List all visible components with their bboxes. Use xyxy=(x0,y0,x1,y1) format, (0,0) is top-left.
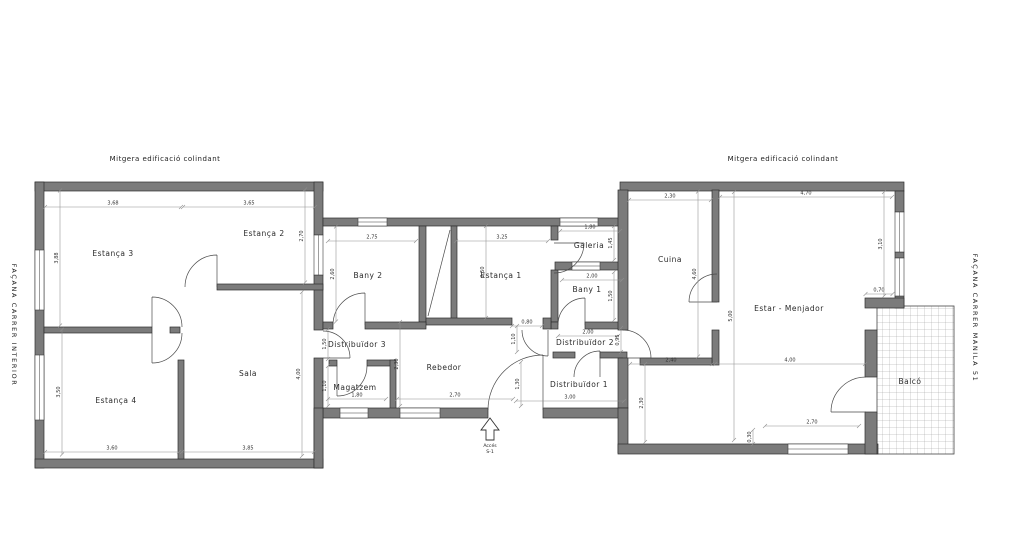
dimension: 2,70 xyxy=(299,188,307,285)
dimension: 4,00 xyxy=(713,358,867,367)
access-sublabel: S-1 xyxy=(486,449,494,455)
room-label-distribuidor-2: Distribuïdor 2 xyxy=(556,338,614,347)
svg-text:4,70: 4,70 xyxy=(800,191,811,197)
dimension: 1,50 xyxy=(608,270,616,322)
svg-text:4,00: 4,00 xyxy=(296,368,302,379)
facade-label-interior: FAÇANA CARRER INTERIOR xyxy=(10,264,18,387)
dimension: 2,00 xyxy=(560,274,624,283)
dimension: 1,10 xyxy=(511,324,519,354)
dimension: 1,45 xyxy=(608,224,616,262)
dimension: 2,30 xyxy=(627,194,713,203)
party-wall-note-left: Mitgera edificació colindant xyxy=(110,155,221,163)
doors xyxy=(152,243,866,412)
svg-text:2,30: 2,30 xyxy=(394,358,400,369)
facade-label-manila: FAÇANA CARRER MANILA 51 xyxy=(971,254,979,383)
svg-text:4,60: 4,60 xyxy=(692,268,698,279)
floor-plan-page: 3,683,652,753,251,802,304,702,000,802,00… xyxy=(0,0,1024,541)
dimension: 4,70 xyxy=(718,191,894,200)
svg-text:3,85: 3,85 xyxy=(242,446,253,452)
svg-text:0,30: 0,30 xyxy=(747,431,753,442)
svg-text:3,65: 3,65 xyxy=(243,201,254,207)
svg-text:3,10: 3,10 xyxy=(878,238,884,249)
room-label-distribuidor-3: Distribuïdor 3 xyxy=(328,340,386,349)
dimension: 4,60 xyxy=(692,190,700,359)
shaft-diagonal xyxy=(428,230,450,316)
svg-text:3,25: 3,25 xyxy=(496,235,507,241)
dimension: 2,60 xyxy=(330,225,338,324)
room-label-estar-menjador: Estar - Menjador xyxy=(754,304,824,313)
dimension: 3,25 xyxy=(454,235,550,244)
dimension: 0,80 xyxy=(510,320,544,329)
dimension: 3,68 xyxy=(43,201,183,210)
svg-text:2,70: 2,70 xyxy=(806,420,817,426)
svg-text:0,80: 0,80 xyxy=(521,320,532,326)
room-label-estanca-2: Estança 2 xyxy=(243,229,284,238)
dimension: 4,00 xyxy=(296,290,304,458)
dimension: 3,88 xyxy=(54,189,62,328)
room-label-bany-2: Bany 2 xyxy=(353,271,382,280)
dimension: 3,10 xyxy=(878,190,886,298)
svg-text:3,00: 3,00 xyxy=(564,395,575,401)
svg-text:5,00: 5,00 xyxy=(728,310,734,321)
svg-text:1,80: 1,80 xyxy=(351,393,362,399)
room-label-estanca-3: Estança 3 xyxy=(92,249,133,258)
svg-text:3,50: 3,50 xyxy=(56,386,62,397)
access-arrow-icon xyxy=(481,418,499,440)
room-label-estanca-4: Estança 4 xyxy=(95,396,136,405)
dimension: 2,70 xyxy=(763,420,861,429)
room-label-distribuidor-1: Distribuïdor 1 xyxy=(550,380,608,389)
svg-text:2,60: 2,60 xyxy=(330,268,336,279)
svg-text:2,30: 2,30 xyxy=(639,397,645,408)
dimension: 0,30 xyxy=(747,428,755,446)
svg-text:2,75: 2,75 xyxy=(366,235,377,241)
svg-text:4,00: 4,00 xyxy=(784,358,795,364)
svg-text:1,80: 1,80 xyxy=(584,225,595,231)
dimension: 2,30 xyxy=(639,362,647,444)
room-label-sala: Sala xyxy=(239,369,257,378)
dimension: 3,50 xyxy=(56,328,64,457)
svg-text:0,70: 0,70 xyxy=(873,288,884,294)
svg-text:0,95: 0,95 xyxy=(615,334,621,345)
svg-text:2,70: 2,70 xyxy=(449,393,460,399)
dimension: 3,00 xyxy=(514,395,626,404)
dimension: 2,00 xyxy=(556,330,620,339)
dimension: 1,80 xyxy=(326,393,388,402)
dimension: 0,70 xyxy=(864,288,895,297)
svg-text:2,40: 2,40 xyxy=(665,358,676,364)
party-wall-note-right: Mitgera edificació colindant xyxy=(728,155,839,163)
svg-text:2,70: 2,70 xyxy=(299,230,305,241)
svg-text:2,00: 2,00 xyxy=(582,330,593,336)
svg-text:1,10: 1,10 xyxy=(322,380,328,391)
svg-text:3,68: 3,68 xyxy=(107,201,118,207)
dimension: 3,65 xyxy=(181,201,317,210)
svg-text:2,00: 2,00 xyxy=(586,274,597,280)
svg-text:1,10: 1,10 xyxy=(511,333,517,344)
room-label-balco: Balcó xyxy=(898,377,921,386)
floor-plan-drawing: 3,683,652,753,251,802,304,702,000,802,00… xyxy=(0,0,1024,541)
room-label-magatzem: Magatzem xyxy=(333,383,376,392)
dimension: 5,00 xyxy=(728,190,736,442)
svg-text:1,45: 1,45 xyxy=(608,237,614,248)
room-label-galeria: Galeria xyxy=(574,241,604,250)
svg-text:1,30: 1,30 xyxy=(515,378,521,389)
svg-text:3,88: 3,88 xyxy=(54,252,60,263)
svg-text:1,50: 1,50 xyxy=(608,290,614,301)
dimension: 3,85 xyxy=(180,446,316,455)
room-label-cuina: Cuina xyxy=(658,255,682,264)
svg-text:3,60: 3,60 xyxy=(106,446,117,452)
dimension: 2,75 xyxy=(326,235,418,244)
svg-text:2,30: 2,30 xyxy=(664,194,675,200)
access-label: Accés xyxy=(483,442,497,449)
walls xyxy=(35,182,904,468)
room-label-estanca-1: Estança 1 xyxy=(480,271,521,280)
room-label-rebedor: Rebedor xyxy=(427,363,462,372)
dimension: 2,70 xyxy=(395,393,515,402)
room-label-bany-1: Bany 1 xyxy=(572,285,601,294)
